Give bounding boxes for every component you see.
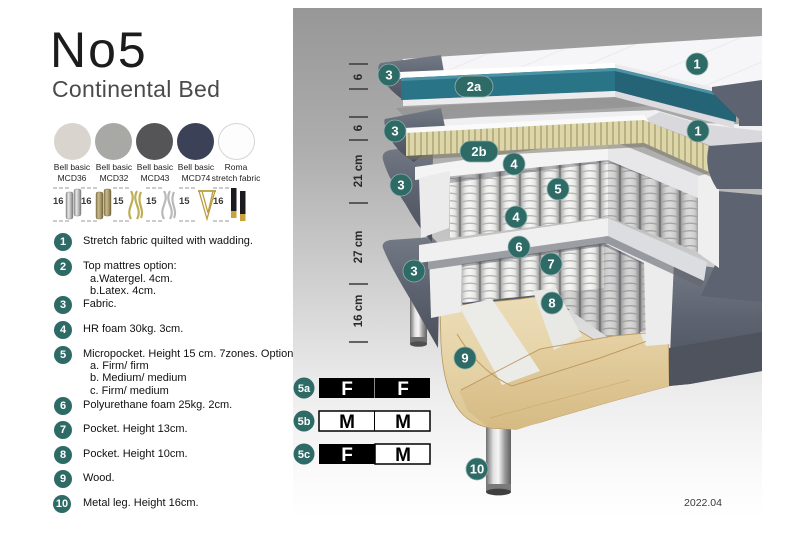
svg-text:10: 10 bbox=[470, 462, 484, 477]
svg-text:F: F bbox=[341, 445, 353, 466]
svg-text:F: F bbox=[341, 379, 353, 400]
svg-text:1: 1 bbox=[693, 57, 700, 72]
svg-text:6: 6 bbox=[353, 74, 365, 80]
svg-text:2b: 2b bbox=[471, 144, 486, 159]
svg-text:5b: 5b bbox=[298, 416, 311, 428]
svg-text:4: 4 bbox=[512, 210, 520, 225]
svg-text:27 cm: 27 cm bbox=[353, 231, 365, 264]
svg-text:7: 7 bbox=[547, 257, 554, 272]
svg-text:8: 8 bbox=[548, 296, 555, 311]
svg-text:1: 1 bbox=[694, 124, 701, 139]
svg-text:F: F bbox=[397, 379, 409, 400]
svg-text:M: M bbox=[339, 412, 355, 433]
svg-text:5a: 5a bbox=[298, 383, 311, 395]
svg-text:4: 4 bbox=[510, 157, 518, 172]
svg-text:M: M bbox=[395, 445, 411, 466]
svg-text:6: 6 bbox=[515, 240, 522, 255]
svg-text:6: 6 bbox=[353, 125, 365, 131]
svg-text:3: 3 bbox=[397, 178, 404, 193]
svg-text:5c: 5c bbox=[298, 449, 310, 461]
svg-text:3: 3 bbox=[391, 124, 398, 139]
svg-text:2a: 2a bbox=[467, 79, 482, 94]
svg-text:16 cm: 16 cm bbox=[353, 295, 365, 328]
svg-text:3: 3 bbox=[410, 264, 417, 279]
svg-text:M: M bbox=[395, 412, 411, 433]
svg-text:2022.04: 2022.04 bbox=[684, 497, 722, 509]
svg-text:3: 3 bbox=[385, 68, 392, 83]
svg-text:21 cm: 21 cm bbox=[353, 155, 365, 188]
svg-text:5: 5 bbox=[554, 182, 561, 197]
svg-text:9: 9 bbox=[461, 351, 468, 366]
